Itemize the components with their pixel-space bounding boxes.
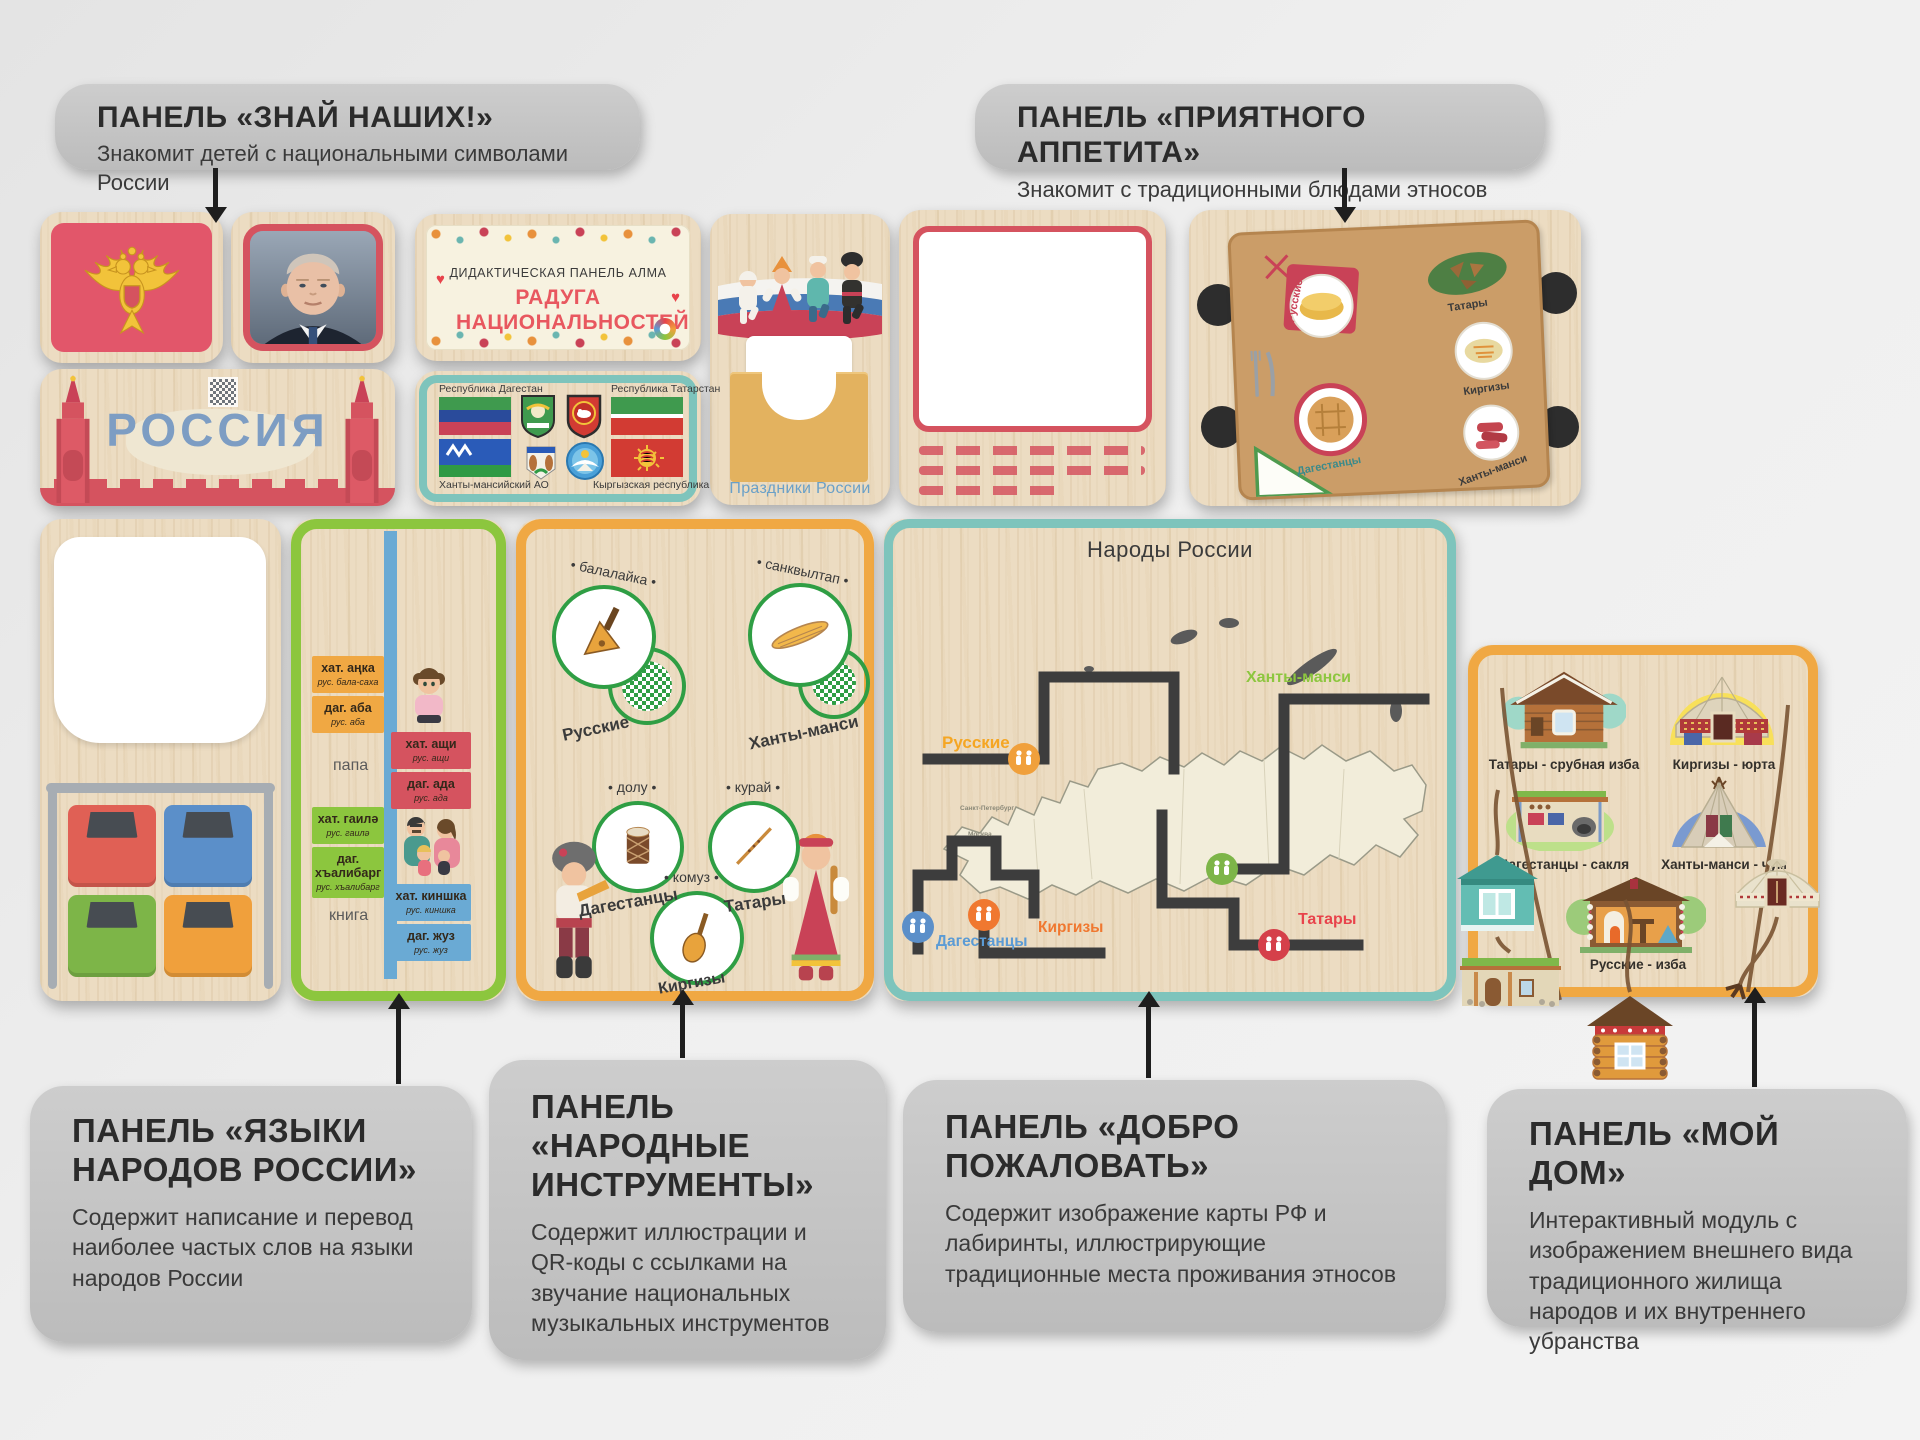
khanty-mansi-coat-of-arms (525, 441, 557, 481)
panel-holidays: Праздники России (710, 214, 890, 505)
word-card-kniga-1: хат. гаилә рус. гаилә даг. хъалибарг рус… (312, 807, 384, 898)
arrow-to-instruments-panel (680, 1004, 685, 1058)
alma-logo-icon (654, 318, 676, 340)
girl-folk-character (770, 831, 862, 989)
arrow-to-languages-panel (396, 1008, 401, 1084)
dash-row (919, 446, 1145, 455)
word-translit: рус. жуз (394, 945, 468, 955)
dagestan-coat-of-arms (519, 393, 557, 439)
panel-title: ♥ ♥ ДИДАКТИЧЕСКАЯ ПАНЕЛЬ АЛМА РАДУГА НАЦ… (415, 214, 701, 361)
panel-whiteboard-drawers (40, 519, 281, 1001)
panel-map: Народы России (884, 519, 1456, 1001)
panel-flags: Республика Дагестан Республика Татарстан… (415, 371, 701, 506)
heart-icon: ♥ (671, 289, 680, 306)
tatarstan-coat-of-arms (565, 393, 603, 439)
rack-leg (264, 783, 273, 989)
panel-russia: РОССИЯ (40, 369, 395, 506)
word-translit: рус. гаилә (315, 828, 381, 838)
callout-appetit: ПАНЕЛЬ «ПРИЯТНОГО АППЕТИТА» Знакомит с т… (975, 84, 1545, 170)
russian-word: книга (329, 907, 368, 925)
instrument-name: комуз (664, 869, 719, 885)
dash-row (919, 486, 1061, 495)
house-label: Татары - срубная изба (1484, 757, 1644, 772)
instrument-name: курай (726, 779, 780, 795)
callout-instruments: ПАНЕЛЬ «НАРОДНЫЕ ИНСТРУМЕНТЫ» Содержит и… (489, 1060, 886, 1360)
khanty-mansi-flag (439, 439, 511, 477)
callout-znai-nashih: ПАНЕЛЬ «ЗНАЙ НАШИХ!» Знакомит детей с на… (55, 84, 640, 170)
callout-title: ПАНЕЛЬ «НАРОДНЫЕ ИНСТРУМЕНТЫ» (531, 1088, 844, 1205)
flag-label-kyrgyz: Кыргызская республика (593, 479, 709, 491)
arrow-to-gerb-panel (213, 168, 218, 208)
russian-izba-interior-illustration (1566, 875, 1706, 955)
russia-title: РОССИЯ (40, 403, 395, 457)
callout-title: ПАНЕЛЬ «МОЙ ДОМ» (1529, 1115, 1865, 1193)
gerb-card (51, 223, 212, 352)
family-illustration (394, 816, 468, 882)
word-translit: рус. бала-саха (315, 677, 381, 687)
word-main: хат. аңка (315, 661, 381, 675)
word-main: даг. жуз (394, 929, 468, 943)
double-headed-eagle-icon (76, 232, 188, 344)
word-main: хат. ащи (394, 737, 468, 751)
panel-food: Русские Татары Киргизы Дагестанцы Ханты-… (1189, 210, 1581, 506)
word-translit: рус. хъалибарг (315, 882, 381, 892)
callout-desc: Знакомит детей с национальными символами… (97, 139, 598, 197)
stone-saklya-house (1458, 950, 1563, 1012)
tatar-log-izba-illustration (1502, 663, 1626, 755)
word-main: хат. киншка (394, 889, 468, 903)
president-photo (250, 231, 376, 344)
dagestan-saklya-illustration (1504, 783, 1616, 851)
teal-wooden-house (1455, 853, 1540, 935)
word-card-kniga-2: хат. киншка рус. киншка даг. жуз рус. жу… (391, 884, 471, 961)
callout-title: ПАНЕЛЬ «ЯЗЫКИ НАРОДОВ РОССИИ» (72, 1112, 430, 1190)
kyrgyz-yurt-illustration (1664, 667, 1780, 755)
russian-word: папа (333, 757, 368, 775)
panel-languages: хат. аңка рус. бала-саха даг. аба рус. а… (291, 519, 506, 1001)
callout-desc: Интерактивный модуль с изображением внеш… (1529, 1205, 1865, 1357)
rack-leg (48, 783, 57, 989)
panel-coat-of-arms (40, 212, 223, 363)
yurt-exterior (1730, 855, 1825, 917)
girl-character (399, 665, 457, 727)
callout-languages: ПАНЕЛЬ «ЯЗЫКИ НАРОДОВ РОССИИ» Содержит н… (30, 1086, 472, 1342)
panel-houses: Татары - срубная изба Киргизы - юрта Даг… (1468, 645, 1818, 997)
word-translit: рус. аба (315, 717, 381, 727)
title-card: ♥ ♥ ДИДАКТИЧЕСКАЯ ПАНЕЛЬ АЛМА РАДУГА НАЦ… (426, 225, 690, 350)
word-main: хат. гаилә (315, 812, 381, 826)
word-main: даг. ада (394, 777, 468, 791)
dash-row (919, 466, 1145, 475)
dagestan-flag (439, 397, 511, 435)
dolu-drum-icon (610, 819, 666, 875)
komuz-icon (668, 909, 726, 967)
callout-welcome: ПАНЕЛЬ «ДОБРО ПОЖАЛОВАТЬ» Содержит изобр… (903, 1080, 1446, 1332)
callout-desc: Содержит изображение карты РФ и лабиринт… (945, 1198, 1404, 1289)
panel-president-portrait (231, 212, 395, 363)
panel-blank-board (899, 210, 1166, 506)
callout-desc: Содержит написание и перевод наиболее ча… (72, 1202, 430, 1293)
drawer-blue (164, 805, 252, 887)
kyrgyz-flag (611, 439, 683, 477)
whiteboard (54, 537, 266, 743)
kyrgyz-emblem (565, 441, 605, 481)
house-label: Русские - изба (1548, 957, 1728, 972)
instrument-circle (552, 585, 656, 689)
house-label: Киргизы - юрта (1646, 757, 1802, 772)
sankvyltap-icon (767, 602, 833, 668)
callout-desc: Знакомит с традиционными блюдами этносов (1017, 175, 1503, 204)
word-translit: рус. ада (394, 793, 468, 803)
word-translit: рус. ащи (394, 753, 468, 763)
arrow-to-food-panel (1342, 168, 1347, 208)
instrument-circle (748, 583, 852, 687)
tatarstan-flag (611, 397, 683, 435)
word-translit: рус. киншка (394, 905, 468, 915)
whiteboard-area (913, 226, 1152, 432)
panel-kicker: ДИДАКТИЧЕСКАЯ ПАНЕЛЬ АЛМА (426, 266, 690, 280)
serving-board: Русские Татары Киргизы Дагестанцы Ханты-… (1227, 219, 1550, 500)
balalaika-icon (572, 605, 636, 669)
instrument-name: долу (608, 779, 656, 795)
drawer-red (68, 805, 156, 887)
panel-instruments: балалайка Русские санквылтап Ханты-манси… (516, 519, 874, 1001)
word-card-papa-2: хат. ащи рус. ащи даг. ада рус. ада (391, 732, 471, 809)
orange-log-cabin (1585, 992, 1675, 1087)
callout-title: ПАНЕЛЬ «ПРИЯТНОГО АППЕТИТА» (1017, 100, 1503, 171)
drawer-green (68, 895, 156, 977)
poster-rainbow-of-nationalities: ПАНЕЛЬ «ЗНАЙ НАШИХ!» Знакомит детей с на… (0, 0, 1920, 1440)
map-border (884, 519, 1456, 1001)
word-main: даг. аба (315, 701, 381, 715)
holidays-label: Праздники России (710, 480, 890, 498)
flag-label-tatarstan: Республика Татарстан (611, 383, 720, 395)
panel-main-title: РАДУГА НАЦИОНАЛЬНОСТЕЙ (456, 285, 660, 335)
word-main: даг. хъалибарг (315, 852, 381, 880)
callout-title: ПАНЕЛЬ «ЗНАЙ НАШИХ!» (97, 100, 598, 135)
food-illustration (1230, 222, 1547, 497)
khanty-chum-illustration (1664, 775, 1774, 853)
arrow-to-houses-panel (1752, 1002, 1757, 1087)
callout-title: ПАНЕЛЬ «ДОБРО ПОЖАЛОВАТЬ» (945, 1108, 1404, 1186)
portrait-frame (243, 224, 383, 351)
callout-home: ПАНЕЛЬ «МОЙ ДОМ» Интерактивный модуль с … (1487, 1089, 1907, 1327)
drawer-orange (164, 895, 252, 977)
word-card-papa-1: хат. аңка рус. бала-саха даг. аба рус. а… (312, 656, 384, 733)
floral-border-top (426, 225, 690, 249)
arrow-to-map-panel (1146, 1006, 1151, 1078)
rack-rail (46, 783, 275, 793)
callout-desc: Содержит иллюстрации и QR-коды с ссылкам… (531, 1217, 844, 1338)
